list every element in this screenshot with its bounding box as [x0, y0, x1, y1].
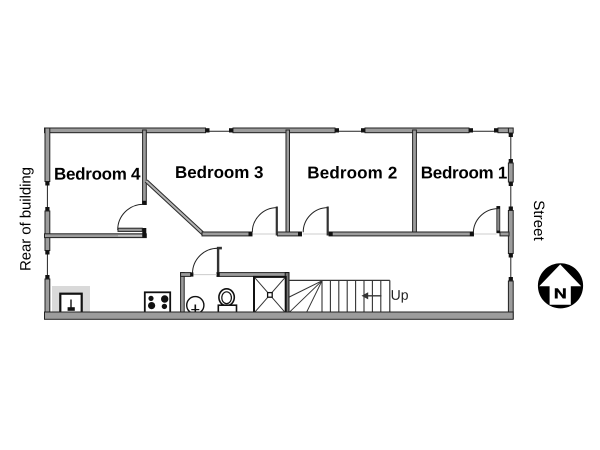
svg-text:Up: Up: [391, 287, 409, 303]
svg-text:Rear of building: Rear of building: [18, 167, 35, 271]
svg-text:Bedroom 1: Bedroom 1: [421, 163, 508, 182]
svg-text:Bedroom 3: Bedroom 3: [175, 163, 264, 182]
svg-text:Bedroom 2: Bedroom 2: [307, 163, 397, 182]
svg-text:Bedroom 4: Bedroom 4: [54, 165, 141, 184]
svg-text:Street: Street: [530, 200, 547, 241]
